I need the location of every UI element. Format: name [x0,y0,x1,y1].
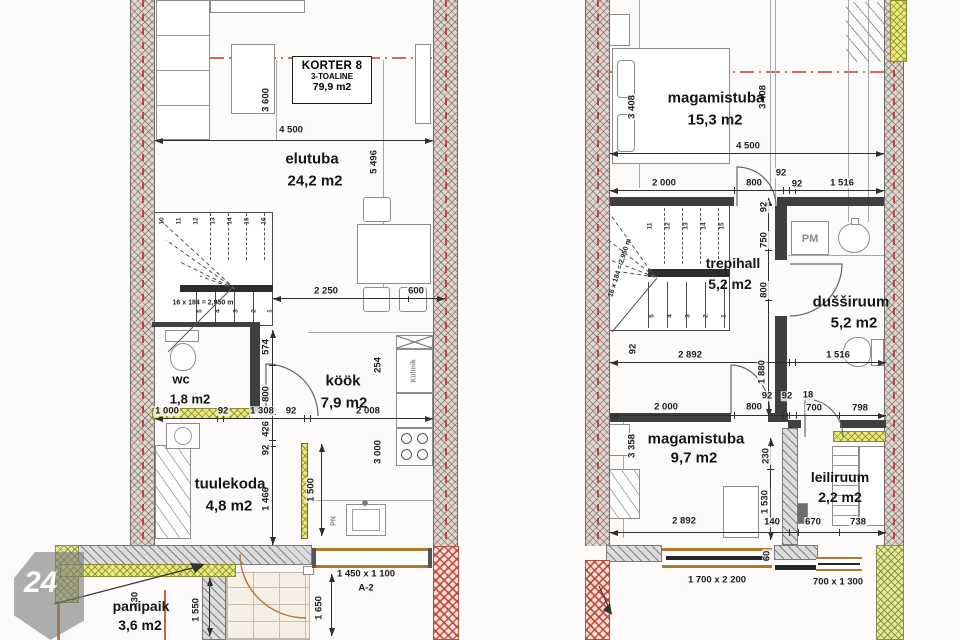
dim-text: 92 [285,406,298,416]
room-label-elutuba: elutuba [285,151,338,168]
dim-text: 2 000 [653,402,679,412]
dim-text: 574 [261,338,271,356]
room-area-elutuba: 24,2 m2 [287,173,342,190]
dim-text: 4 500 [278,125,304,135]
dim-tick [789,359,790,366]
apartment-area: 79,9 m2 [295,81,369,93]
dim-text: 92 [261,444,271,457]
dim-tick [269,365,276,366]
window-code-text: A-2 [357,583,374,593]
dim-text: 230 [761,447,771,465]
dim-text: 800 [759,281,769,299]
dim-line [610,190,884,191]
dim-text: 600 [407,286,425,296]
dim-line [610,362,886,363]
dim-tick [839,412,840,419]
room-label-magamistuba2: magamistuba [648,431,745,448]
window-size-text: 700 x 1 300 [812,577,864,587]
dim-text: 798 [851,403,869,413]
dim-text: 800 [745,402,763,412]
dim-line [331,574,332,636]
room-area-dussiruum: 5,2 m2 [831,315,878,332]
window-size-text: 1 700 x 2 200 [687,575,747,585]
dim-text: 1 308 [249,406,275,416]
room-label-wc: wc [172,372,189,387]
dim-tick [795,359,796,366]
dim-tick [789,412,790,419]
dim-line [209,578,210,636]
door-arcs-layer [0,0,960,640]
dim-text: 1 530 [760,489,770,515]
f2-stair-direction-line [612,278,657,332]
apartment-type: 3-TOALINE [295,72,369,81]
dim-text: 1 650 [314,595,324,621]
dim-text: 3 000 [373,439,383,465]
dim-text: 92 [759,201,769,214]
dim-line [321,444,322,536]
dim-text: 800 [745,178,763,188]
room-area-tuulekoda: 4,8 m2 [206,498,253,515]
dim-text: 800 [261,385,271,403]
room-area-trepihall: 5,2 m2 [708,276,752,292]
dim-text: 750 [759,231,769,249]
dim-text: 2 250 [313,286,339,296]
dim-text: 1 500 [306,477,316,503]
dim-text: 670 [804,517,822,527]
dim-tick [734,187,735,194]
dim-text: 700 [805,403,823,413]
window-size-text: 1 450 x 1 100 [336,569,396,579]
dim-line [272,330,273,545]
dim-tick [783,412,784,419]
dim-text: 426 [261,420,271,438]
dim-tick [304,415,305,422]
dim-text: 1 880 [757,359,767,385]
dim-text: 92 [775,168,788,178]
dim-tick [796,412,797,419]
dim-line [155,140,433,141]
dim-text: 1 000 [154,406,180,416]
room-label-tuulekoda: tuulekoda [195,476,266,493]
dim-tick [765,300,772,301]
dim-tick [310,415,311,422]
dim-tick [783,187,784,194]
title-block: KORTER 8 3-TOALINE 79,9 m2 [292,56,372,104]
dim-tick [839,529,840,536]
entry-door-arc [240,554,306,618]
dim-text: 3 358 [627,433,637,459]
dim-text: 140 [763,517,781,527]
dim-text: 254 [373,356,383,374]
room-label-leiliruum: leiliruum [811,469,869,485]
dim-line [610,415,886,416]
dim-line [610,153,884,154]
dim-text: 92 [628,343,638,356]
room-area-panipaik: 3,6 m2 [118,617,162,633]
apartment-name: KORTER 8 [295,60,369,72]
dim-text: 3 408 [627,94,637,120]
dim-tick [798,529,799,536]
dim-text: 92 [791,179,804,189]
room-label-magamistuba1: magamistuba [668,90,765,107]
f1-winder-steps [158,218,235,289]
dim-text: 92 [217,406,230,416]
dim-text: 3 600 [261,87,271,113]
f1-stair-direction-line [168,287,233,352]
dim-text: 5 496 [369,149,379,175]
dim-text: 2 892 [671,516,697,526]
room-area-kook: 7,9 m2 [321,395,368,412]
dim-text: 2 000 [651,178,677,188]
dim-tick [767,469,774,470]
dim-text: 1 516 [825,350,851,360]
dim-tick [789,529,790,536]
dim-text: 4 500 [735,141,761,151]
dim-tick [765,250,772,251]
dim-text: 18 [802,390,815,400]
dim-line [155,418,433,419]
dim-text: 1 516 [829,178,855,188]
floorplan-page: { "watermark": {"number": "24"}, "title_… [0,0,960,640]
dim-line [273,298,445,299]
room-area-leiliruum: 2,2 m2 [818,489,862,505]
room-area-magamistuba1: 15,3 m2 [687,112,742,129]
watermark-number: 24 [24,566,57,599]
dim-text: 92 [761,391,774,401]
room-label-kook: köök [325,373,360,390]
room-label-trepihall: trepihall [706,255,760,271]
room-area-magamistuba2: 9,7 m2 [671,450,718,467]
dim-tick [734,412,735,419]
room-label-dussiruum: dušširuum [813,294,890,311]
f2-winder-steps [606,214,655,277]
dim-text: 1 550 [191,597,201,623]
dim-text: 2 892 [677,350,703,360]
dim-text: 738 [849,517,867,527]
room-area-wc: 1,8 m2 [170,392,210,407]
room-label-panipaik: panipaik [113,598,170,614]
dim-text: 60 [762,550,772,563]
dim-text: 92 [781,391,794,401]
dim-line [610,532,886,533]
dim-tick [269,440,276,441]
